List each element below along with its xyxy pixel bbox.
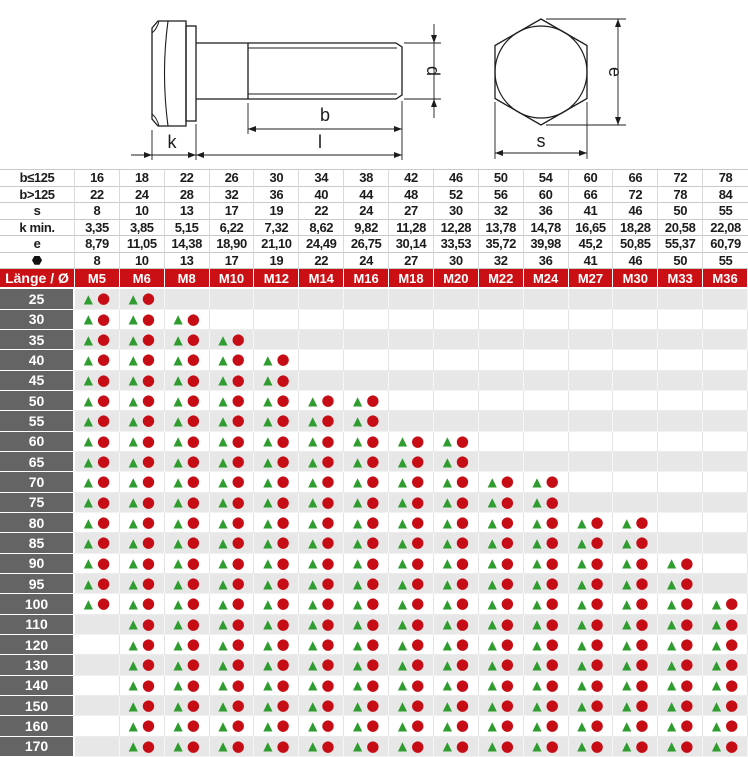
availability-cell-inner: [703, 411, 748, 431]
availability-cell: ▲●: [434, 676, 479, 696]
triangle-marker-icon: ▲: [667, 639, 676, 651]
triangle-marker-icon: ▲: [263, 456, 272, 468]
availability-cell: ▲●: [120, 635, 165, 655]
availability-cell: [613, 432, 658, 452]
availability-cell-inner: ▲●: [434, 432, 479, 452]
availability-cell-inner: ▲●: [434, 513, 479, 533]
triangle-marker-icon: ▲: [488, 557, 497, 569]
availability-cell-inner: ▲●: [210, 635, 255, 655]
triangle-marker-icon: ▲: [129, 334, 138, 346]
triangle-marker-icon: ▲: [129, 557, 138, 569]
triangle-marker-icon: ▲: [532, 720, 541, 732]
availability-cell: ▲●: [479, 574, 524, 594]
availability-cell: ▲●: [165, 635, 210, 655]
circle-marker-icon: ●: [97, 596, 110, 611]
circle-marker-icon: ●: [142, 474, 155, 489]
availability-cell-inner: ▲●: [165, 676, 210, 696]
availability-cell: ▲●: [389, 737, 434, 757]
availability-cell-inner: ▲●: [254, 350, 299, 370]
spec-value: 8,79: [75, 236, 120, 253]
availability-cell: ▲●: [344, 533, 389, 553]
circle-marker-icon: ●: [501, 678, 514, 693]
availability-cell: ▲●: [165, 452, 210, 472]
availability-cell: [210, 289, 255, 309]
circle-marker-icon: ●: [680, 596, 693, 611]
availability-cell-inner: ▲●: [569, 655, 614, 675]
availability-cell: [479, 350, 524, 370]
availability-cell-inner: [524, 310, 569, 330]
availability-cell-inner: ▲●: [389, 452, 434, 472]
circle-marker-icon: ●: [321, 637, 334, 652]
availability-cell: ▲●: [524, 533, 569, 553]
triangle-marker-icon: ▲: [218, 374, 227, 386]
availability-cell: [210, 310, 255, 330]
triangle-marker-icon: ▲: [667, 740, 676, 752]
availability-cell: ▲●: [479, 716, 524, 736]
triangle-marker-icon: ▲: [129, 395, 138, 407]
availability-cell: ▲●: [120, 615, 165, 635]
length-label: 65: [0, 452, 75, 472]
availability-cell-inner: ▲●: [613, 513, 658, 533]
availability-cell-inner: ▲●: [389, 655, 434, 675]
availability-cell: [703, 310, 748, 330]
spec-value: 10: [120, 203, 165, 220]
availability-cell-inner: ▲●: [613, 594, 658, 614]
circle-marker-icon: ●: [142, 495, 155, 510]
availability-cell: ▲●: [434, 472, 479, 492]
triangle-marker-icon: ▲: [84, 456, 93, 468]
availability-cell: [658, 310, 703, 330]
availability-cell-inner: ▲●: [344, 472, 389, 492]
availability-cell: [569, 493, 614, 513]
triangle-marker-icon: ▲: [353, 476, 362, 488]
availability-cell-inner: ▲●: [569, 615, 614, 635]
hex-dimension-labels: e s: [537, 67, 626, 151]
availability-cell-inner: ▲●: [434, 737, 479, 757]
hexagon-icon: [32, 256, 42, 265]
spec-value: 40: [299, 187, 344, 204]
triangle-marker-icon: ▲: [488, 720, 497, 732]
circle-marker-icon: ●: [546, 495, 559, 510]
length-label: 40: [0, 350, 75, 370]
triangle-marker-icon: ▲: [353, 740, 362, 752]
circle-marker-icon: ●: [142, 678, 155, 693]
circle-marker-icon: ●: [232, 454, 245, 469]
availability-cell-inner: ▲●: [344, 635, 389, 655]
circle-marker-icon: ●: [366, 596, 379, 611]
triangle-marker-icon: ▲: [353, 618, 362, 630]
availability-cell: [658, 289, 703, 309]
availability-cell: ▲●: [389, 716, 434, 736]
availability-cell-inner: ▲●: [344, 737, 389, 757]
circle-marker-icon: ●: [321, 617, 334, 632]
spec-value: 50: [479, 170, 524, 187]
availability-cell: ▲●: [165, 472, 210, 492]
availability-cell-inner: ▲●: [703, 696, 748, 716]
availability-cell-inner: ▲●: [120, 676, 165, 696]
availability-cell: ▲●: [479, 676, 524, 696]
triangle-marker-icon: ▲: [443, 618, 452, 630]
triangle-marker-icon: ▲: [398, 659, 407, 671]
spec-value: 18,28: [613, 220, 658, 237]
circle-marker-icon: ●: [456, 576, 469, 591]
availability-cell-inner: ▲●: [299, 737, 344, 757]
availability-cell-inner: ▲●: [344, 513, 389, 533]
availability-cell-inner: [658, 411, 703, 431]
spec-value: 16: [75, 170, 120, 187]
triangle-marker-icon: ▲: [443, 435, 452, 447]
triangle-marker-icon: ▲: [263, 740, 272, 752]
availability-cell: ▲●: [658, 737, 703, 757]
circle-marker-icon: ●: [456, 515, 469, 530]
spec-value: 32: [479, 253, 524, 270]
availability-cell: ▲●: [613, 594, 658, 614]
availability-cell-inner: ▲●: [479, 696, 524, 716]
circle-marker-icon: ●: [187, 454, 200, 469]
availability-cell: ▲●: [613, 574, 658, 594]
availability-cell: [524, 350, 569, 370]
spec-value: 36: [524, 203, 569, 220]
triangle-marker-icon: ▲: [263, 415, 272, 427]
circle-marker-icon: ●: [591, 515, 604, 530]
availability-cell-inner: ▲●: [210, 472, 255, 492]
circle-marker-icon: ●: [366, 434, 379, 449]
availability-cell-inner: ▲●: [120, 452, 165, 472]
availability-cell: [75, 716, 120, 736]
availability-cell: [254, 330, 299, 350]
circle-marker-icon: ●: [232, 637, 245, 652]
availability-cell-inner: ▲●: [658, 696, 703, 716]
circle-marker-icon: ●: [321, 495, 334, 510]
availability-cell-inner: [703, 493, 748, 513]
circle-marker-icon: ●: [276, 657, 289, 672]
availability-cell: ▲●: [165, 432, 210, 452]
technical-drawings: d b l k e s: [0, 0, 748, 169]
availability-cell-inner: ▲●: [254, 676, 299, 696]
circle-marker-icon: ●: [591, 596, 604, 611]
triangle-marker-icon: ▲: [308, 720, 317, 732]
triangle-marker-icon: ▲: [84, 537, 93, 549]
availability-cell: [344, 371, 389, 391]
availability-cell: ▲●: [75, 594, 120, 614]
triangle-marker-icon: ▲: [263, 354, 272, 366]
circle-marker-icon: ●: [187, 657, 200, 672]
spec-value: 20,58: [658, 220, 703, 237]
triangle-marker-icon: ▲: [712, 618, 721, 630]
availability-cell-inner: ▲●: [120, 350, 165, 370]
availability-cell-inner: ▲●: [389, 472, 434, 492]
availability-cell: [479, 330, 524, 350]
availability-cell: ▲●: [299, 716, 344, 736]
availability-cell-inner: ▲●: [479, 493, 524, 513]
availability-cell-inner: ▲●: [479, 635, 524, 655]
availability-cell: [569, 411, 614, 431]
availability-cell: ▲●: [344, 615, 389, 635]
triangle-marker-icon: ▲: [532, 496, 541, 508]
triangle-marker-icon: ▲: [218, 517, 227, 529]
circle-marker-icon: ●: [411, 434, 424, 449]
availability-cell-inner: ▲●: [120, 737, 165, 757]
availability-cell: ▲●: [569, 676, 614, 696]
availability-cell: ▲●: [75, 432, 120, 452]
triangle-marker-icon: ▲: [398, 740, 407, 752]
availability-cell-inner: ▲●: [165, 330, 210, 350]
circle-marker-icon: ●: [591, 617, 604, 632]
circle-marker-icon: ●: [725, 739, 738, 754]
availability-cell: ▲●: [210, 716, 255, 736]
availability-cell: ▲●: [210, 371, 255, 391]
triangle-marker-icon: ▲: [398, 435, 407, 447]
availability-cell-inner: ▲●: [569, 513, 614, 533]
triangle-marker-icon: ▲: [622, 720, 631, 732]
circle-marker-icon: ●: [366, 454, 379, 469]
triangle-marker-icon: ▲: [308, 517, 317, 529]
availability-cell: ▲●: [434, 554, 479, 574]
circle-marker-icon: ●: [501, 474, 514, 489]
circle-marker-icon: ●: [680, 718, 693, 733]
availability-cell: [703, 472, 748, 492]
availability-cell: ▲●: [165, 676, 210, 696]
availability-cell-inner: [569, 310, 614, 330]
availability-cell: ▲●: [524, 696, 569, 716]
availability-cell-inner: ▲●: [524, 533, 569, 553]
availability-cell: [389, 289, 434, 309]
availability-cell-inner: ▲●: [479, 655, 524, 675]
triangle-marker-icon: ▲: [353, 679, 362, 691]
circle-marker-icon: ●: [546, 535, 559, 550]
availability-cell: [703, 289, 748, 309]
circle-marker-icon: ●: [366, 739, 379, 754]
availability-cell: ▲●: [344, 635, 389, 655]
circle-marker-icon: ●: [321, 596, 334, 611]
availability-cell-inner: [569, 289, 614, 309]
availability-cell-inner: ▲●: [299, 391, 344, 411]
availability-cell-inner: ▲●: [389, 615, 434, 635]
availability-cell: ▲●: [479, 615, 524, 635]
circle-marker-icon: ●: [321, 576, 334, 591]
availability-cell-inner: ▲●: [658, 635, 703, 655]
availability-cell: [524, 330, 569, 350]
circle-marker-icon: ●: [321, 474, 334, 489]
availability-cell-inner: ▲●: [344, 411, 389, 431]
availability-cell: ▲●: [524, 737, 569, 757]
circle-marker-icon: ●: [276, 718, 289, 733]
availability-cell: [613, 493, 658, 513]
availability-cell-inner: [479, 371, 524, 391]
triangle-marker-icon: ▲: [129, 720, 138, 732]
availability-cell-inner: ▲●: [165, 513, 210, 533]
triangle-marker-icon: ▲: [488, 659, 497, 671]
availability-cell-inner: [703, 289, 748, 309]
availability-cell-inner: ▲●: [254, 452, 299, 472]
availability-cell-inner: ▲●: [75, 472, 120, 492]
triangle-marker-icon: ▲: [353, 456, 362, 468]
availability-cell: [658, 533, 703, 553]
triangle-marker-icon: ▲: [308, 659, 317, 671]
availability-cell: [434, 391, 479, 411]
availability-cell-inner: ▲●: [613, 533, 658, 553]
triangle-marker-icon: ▲: [129, 517, 138, 529]
triangle-marker-icon: ▲: [129, 496, 138, 508]
availability-cell-inner: ▲●: [254, 635, 299, 655]
circle-marker-icon: ●: [591, 556, 604, 571]
availability-cell: ▲●: [165, 371, 210, 391]
triangle-marker-icon: ▲: [129, 679, 138, 691]
availability-cell: ▲●: [703, 594, 748, 614]
spec-value: 55: [703, 203, 748, 220]
availability-cell-inner: [389, 411, 434, 431]
availability-cell-inner: [703, 574, 748, 594]
availability-cell: ▲●: [613, 716, 658, 736]
availability-cell-inner: ▲●: [344, 716, 389, 736]
availability-cell-inner: [344, 371, 389, 391]
availability-cell: ▲●: [569, 615, 614, 635]
availability-cell-inner: [524, 330, 569, 350]
circle-marker-icon: ●: [411, 596, 424, 611]
availability-cell: ▲●: [479, 594, 524, 614]
triangle-marker-icon: ▲: [173, 334, 182, 346]
circle-marker-icon: ●: [411, 474, 424, 489]
availability-cell-inner: ▲●: [389, 533, 434, 553]
circle-marker-icon: ●: [187, 434, 200, 449]
triangle-marker-icon: ▲: [84, 517, 93, 529]
circle-marker-icon: ●: [635, 576, 648, 591]
availability-cell: ▲●: [389, 594, 434, 614]
availability-cell: ▲●: [434, 432, 479, 452]
circle-marker-icon: ●: [276, 535, 289, 550]
availability-cell: ▲●: [210, 594, 255, 614]
availability-cell-inner: ▲●: [120, 472, 165, 492]
triangle-marker-icon: ▲: [129, 578, 138, 590]
availability-cell-inner: ▲●: [75, 289, 120, 309]
circle-marker-icon: ●: [501, 515, 514, 530]
spec-value: 24: [120, 187, 165, 204]
availability-cell: ▲●: [658, 554, 703, 574]
triangle-marker-icon: ▲: [577, 679, 586, 691]
availability-cell: ▲●: [344, 655, 389, 675]
availability-cell-inner: ▲●: [658, 737, 703, 757]
circle-marker-icon: ●: [276, 596, 289, 611]
spec-value: 24: [344, 253, 389, 270]
circle-marker-icon: ●: [187, 637, 200, 652]
triangle-marker-icon: ▲: [712, 598, 721, 610]
spec-value: 72: [658, 170, 703, 187]
triangle-marker-icon: ▲: [218, 618, 227, 630]
availability-cell: ▲●: [120, 696, 165, 716]
availability-cell: ▲●: [165, 330, 210, 350]
circle-marker-icon: ●: [276, 515, 289, 530]
circle-marker-icon: ●: [591, 576, 604, 591]
circle-marker-icon: ●: [456, 495, 469, 510]
triangle-marker-icon: ▲: [577, 618, 586, 630]
column-header-m33: M33: [658, 269, 703, 289]
availability-cell-inner: ▲●: [479, 472, 524, 492]
availability-cell: ▲●: [165, 493, 210, 513]
availability-cell-inner: ▲●: [434, 594, 479, 614]
availability-cell-inner: ▲●: [344, 432, 389, 452]
availability-cell: ▲●: [479, 513, 524, 533]
availability-cell: [254, 289, 299, 309]
triangle-marker-icon: ▲: [218, 720, 227, 732]
availability-cell: ▲●: [210, 432, 255, 452]
spec-value: 26,75: [344, 236, 389, 253]
circle-marker-icon: ●: [725, 596, 738, 611]
triangle-marker-icon: ▲: [173, 557, 182, 569]
circle-marker-icon: ●: [97, 474, 110, 489]
circle-marker-icon: ●: [501, 657, 514, 672]
availability-cell: ▲●: [299, 594, 344, 614]
spec-value: 6,22: [210, 220, 255, 237]
triangle-marker-icon: ▲: [218, 659, 227, 671]
availability-cell-inner: ▲●: [120, 289, 165, 309]
circle-marker-icon: ●: [142, 393, 155, 408]
availability-cell-inner: [479, 411, 524, 431]
triangle-marker-icon: ▲: [532, 598, 541, 610]
availability-cell: ▲●: [120, 594, 165, 614]
availability-cell-inner: ▲●: [165, 411, 210, 431]
availability-cell: [75, 696, 120, 716]
spec-value: 60,79: [703, 236, 748, 253]
spec-value: 27: [389, 253, 434, 270]
triangle-marker-icon: ▲: [129, 476, 138, 488]
spec-value: 21,10: [254, 236, 299, 253]
availability-cell: [569, 391, 614, 411]
availability-cell-inner: [703, 533, 748, 553]
availability-cell: ▲●: [613, 554, 658, 574]
triangle-marker-icon: ▲: [308, 740, 317, 752]
availability-cell: ▲●: [569, 594, 614, 614]
circle-marker-icon: ●: [366, 495, 379, 510]
availability-cell: ▲●: [434, 533, 479, 553]
dim-label-b: b: [320, 105, 330, 125]
availability-cell-inner: ▲●: [210, 696, 255, 716]
availability-cell: ▲●: [210, 737, 255, 757]
availability-cell-inner: [658, 452, 703, 472]
triangle-marker-icon: ▲: [308, 496, 317, 508]
triangle-marker-icon: ▲: [622, 557, 631, 569]
availability-cell-inner: ▲●: [434, 554, 479, 574]
availability-cell: ▲●: [210, 513, 255, 533]
circle-marker-icon: ●: [501, 576, 514, 591]
availability-cell: ▲●: [479, 635, 524, 655]
availability-cell-inner: [479, 350, 524, 370]
availability-cell: [75, 676, 120, 696]
circle-marker-icon: ●: [321, 718, 334, 733]
circle-marker-icon: ●: [232, 434, 245, 449]
circle-marker-icon: ●: [187, 678, 200, 693]
circle-marker-icon: ●: [635, 556, 648, 571]
spec-value: 24: [344, 203, 389, 220]
circle-marker-icon: ●: [187, 596, 200, 611]
availability-cell: ▲●: [658, 635, 703, 655]
availability-cell-inner: [299, 350, 344, 370]
availability-cell-inner: ▲●: [254, 574, 299, 594]
triangle-marker-icon: ▲: [353, 395, 362, 407]
availability-cell-inner: ▲●: [165, 716, 210, 736]
triangle-marker-icon: ▲: [667, 700, 676, 712]
triangle-marker-icon: ▲: [218, 639, 227, 651]
spec-value: 30: [434, 203, 479, 220]
availability-cell-inner: [524, 432, 569, 452]
availability-cell-inner: ▲●: [75, 330, 120, 350]
triangle-marker-icon: ▲: [353, 578, 362, 590]
availability-cell-inner: ▲●: [434, 533, 479, 553]
triangle-marker-icon: ▲: [488, 476, 497, 488]
triangle-marker-icon: ▲: [577, 659, 586, 671]
triangle-marker-icon: ▲: [129, 598, 138, 610]
triangle-marker-icon: ▲: [218, 395, 227, 407]
triangle-marker-icon: ▲: [577, 578, 586, 590]
